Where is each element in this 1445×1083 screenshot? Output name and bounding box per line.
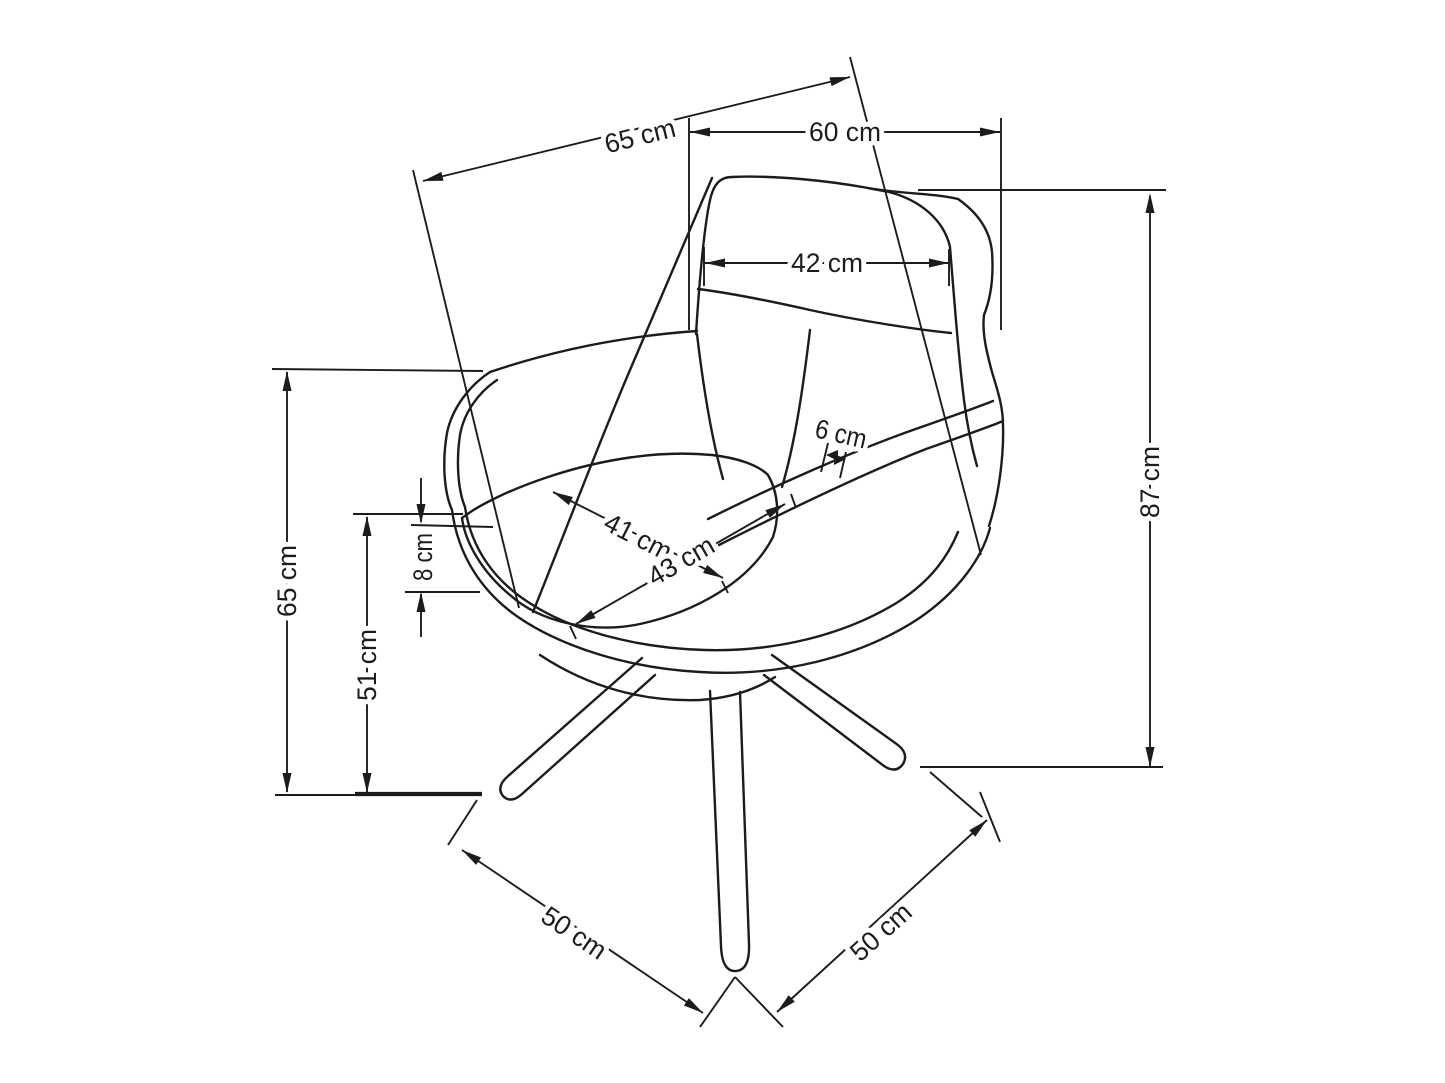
dimension-base-span-right: 50 cm [735, 772, 1000, 1027]
arrowhead [462, 850, 481, 865]
armrest-right-band-upper [708, 401, 993, 519]
dimension-armrest-top-width: 6 cm [812, 414, 869, 478]
dim-label-overall-depth: 60 cm [809, 117, 881, 147]
extension-tick [821, 443, 828, 472]
arrowhead [703, 565, 723, 578]
leg-front [710, 691, 749, 971]
dim-label-seat-height: 51 cm [352, 629, 382, 701]
arrowhead [1146, 747, 1155, 767]
arrowhead [363, 773, 372, 793]
extension-tick [570, 626, 576, 639]
extension-tick [980, 792, 1000, 842]
dim-label-base-span-right: 50 cm [844, 897, 918, 967]
dim-label-armrest-height: 65 cm [272, 545, 302, 617]
armrest-left-front-and-shell-rim [444, 372, 990, 673]
dim-label-base-span-left: 50 cm [536, 900, 612, 965]
dimension-armrest-height: 65 cm [272, 369, 483, 795]
leg-left [500, 658, 655, 800]
arrowhead [576, 610, 596, 624]
dimension-overall-height: 87 cm [918, 190, 1166, 767]
extension-tick [448, 800, 477, 845]
arrowhead [690, 128, 710, 137]
backrest-seam-vertical [782, 330, 810, 487]
arrowhead [980, 128, 1000, 137]
backrest-right-edge [889, 192, 977, 466]
shell-right-edge [958, 199, 1003, 526]
dimension-seat-depth: 43 cm [570, 494, 796, 639]
backrest-top-edge [732, 177, 889, 192]
arrowhead [684, 998, 703, 1013]
arrowhead [705, 259, 725, 268]
dim-label-armrest-top-width: 6 cm [812, 414, 869, 455]
extension-tick [700, 977, 735, 1027]
dim-label-backrest-width: 42 cm [791, 248, 863, 278]
arrowhead [1146, 193, 1155, 213]
diagram-canvas: 65 cm 60 cm 42 cm [0, 0, 1445, 1083]
arrowhead [363, 516, 372, 536]
dimension-backrest-width: 42 cm [704, 247, 949, 286]
extension-tick [791, 494, 796, 508]
arrowhead [283, 371, 292, 391]
extension-line [272, 369, 483, 371]
arrowhead [423, 172, 444, 181]
arrowhead [417, 592, 426, 612]
leg-right [764, 655, 905, 770]
arrowhead [830, 77, 851, 86]
extension-tick [735, 977, 783, 1027]
dimension-base-span-left: 50 cm [448, 800, 735, 1027]
arrowhead [283, 773, 292, 793]
dim-label-overall-width: 65 cm [601, 113, 678, 160]
arrowhead [553, 492, 573, 505]
chair-drawing [444, 177, 1003, 971]
arrowhead [929, 259, 949, 268]
dim-label-seat-thickness: 8 cm [408, 533, 438, 581]
extension-line [411, 525, 493, 527]
backrest-left-edge-lower [697, 334, 723, 479]
chair-dimension-diagram: 65 cm 60 cm 42 cm [0, 0, 1445, 1083]
dim-label-overall-height: 87 cm [1135, 446, 1165, 518]
armrest-left-top-edge [490, 331, 697, 372]
extension-line [930, 772, 982, 817]
